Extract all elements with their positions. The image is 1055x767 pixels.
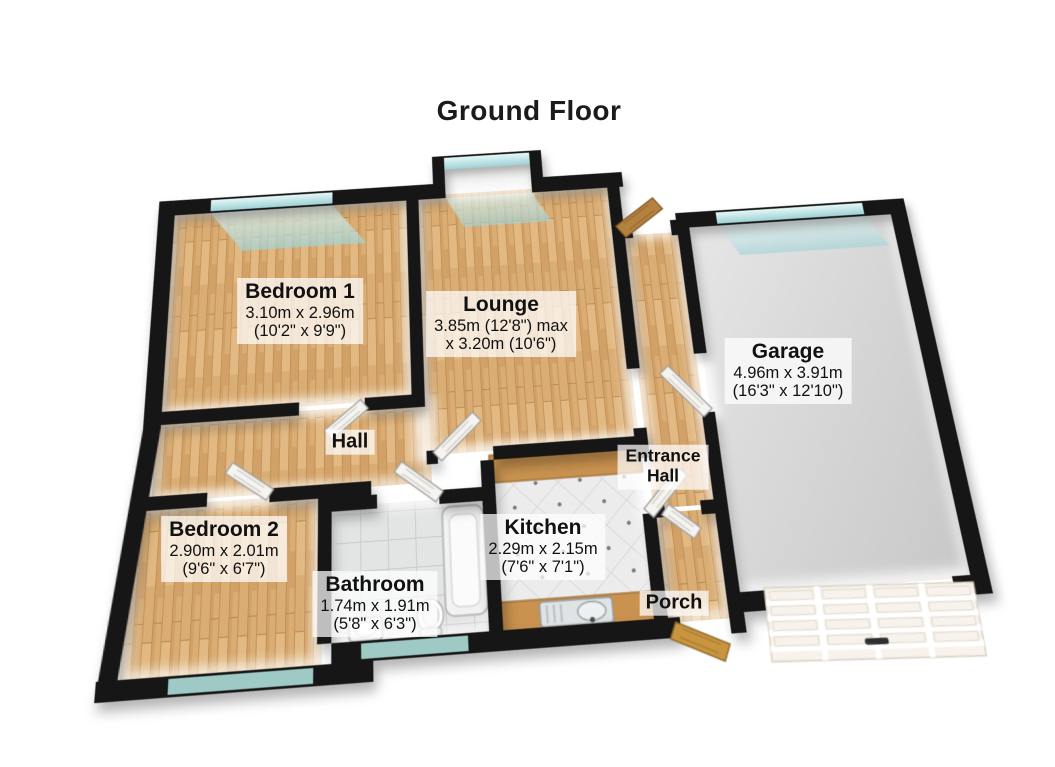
garage-door-handle	[865, 638, 890, 645]
bedroom2-floor	[120, 494, 323, 683]
page-title: Ground Floor	[437, 95, 622, 127]
porch-door	[671, 622, 730, 661]
bathtub	[442, 504, 488, 616]
lounge-floor	[414, 184, 639, 456]
basin	[349, 616, 382, 641]
floorplan-svg	[64, 113, 1055, 767]
floorplan-page: Ground Floor	[0, 0, 1055, 767]
garage-door	[764, 582, 986, 662]
toilet	[417, 598, 444, 638]
